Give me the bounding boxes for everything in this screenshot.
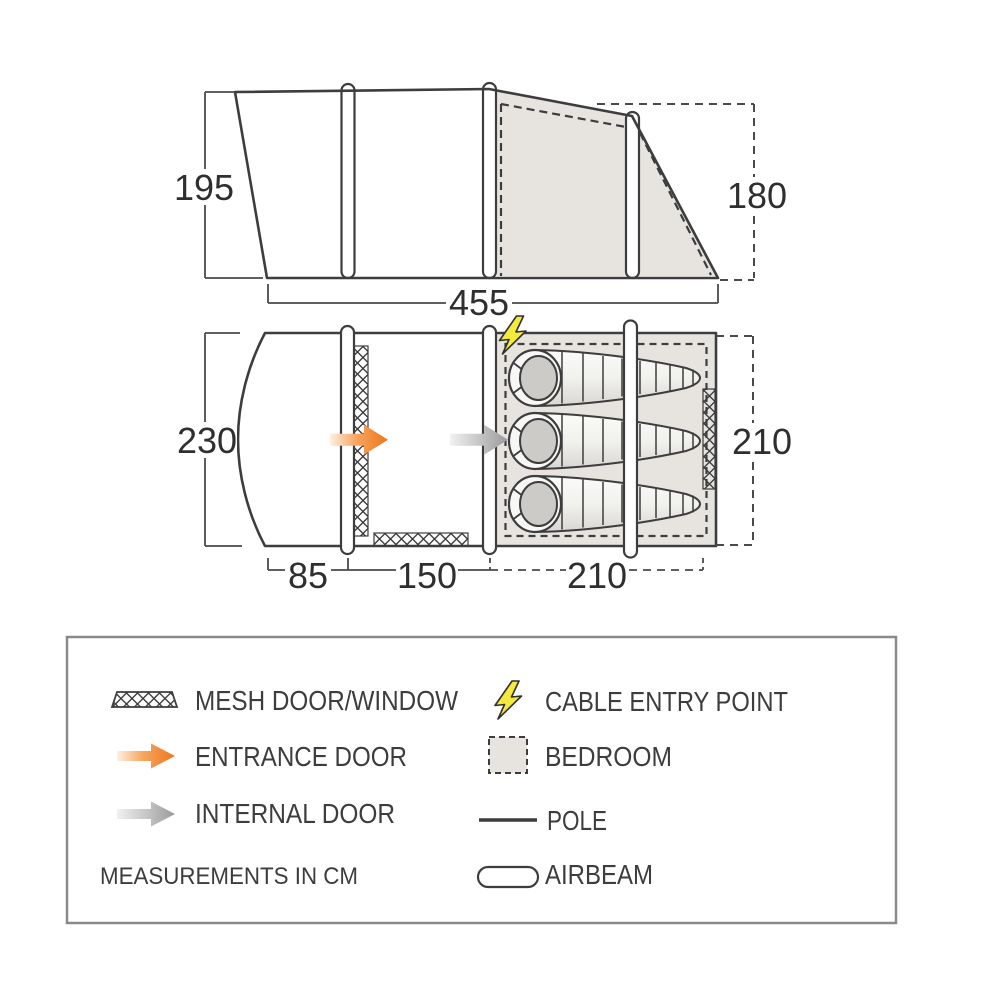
elevation-height-right-label: 180 (727, 175, 787, 216)
mesh-pattern-icon (112, 692, 177, 707)
legend-label-internal: INTERNAL DOOR (195, 798, 395, 829)
tent-dimensions-diagram: 195 180 455 (0, 0, 1001, 1001)
legend-measurements-note: MEASUREMENTS IN CM (100, 863, 358, 890)
airbeam-pole-icon (483, 83, 496, 278)
airbeam-pole-icon (624, 321, 637, 558)
floorplan-width-left-label: 230 (177, 420, 237, 461)
floorplan-living-length-label: 150 (397, 555, 457, 596)
airbeam-pole-icon (626, 112, 639, 278)
airbeam-capsule-icon (478, 867, 538, 887)
floorplan-view: 230 210 85 150 210 (177, 316, 792, 596)
legend-label-entrance: ENTRANCE DOOR (195, 741, 407, 772)
floorplan-length-dimensions (268, 558, 703, 570)
floorplan-porch-length-label: 85 (288, 555, 328, 596)
elevation-width-label: 455 (449, 282, 509, 323)
floorplan-width-right-label: 210 (732, 421, 792, 462)
floorplan-bedroom-length-label: 210 (567, 555, 627, 596)
bedroom-swatch-icon (489, 737, 527, 773)
legend: MESH DOOR/WINDOW ENTRANCE DOOR INTERNAL … (67, 637, 896, 923)
mesh-door-window-icon (703, 389, 715, 489)
legend-label-mesh: MESH DOOR/WINDOW (195, 685, 458, 716)
legend-label-bedroom: BEDROOM (545, 741, 672, 772)
mesh-door-window-icon (374, 533, 468, 546)
elevation-view: 195 180 455 (174, 83, 787, 323)
elevation-bedroom-shade (497, 91, 717, 276)
legend-label-pole: POLE (547, 805, 607, 836)
legend-label-airbeam: AIRBEAM (545, 859, 653, 890)
elevation-height-left-label: 195 (174, 167, 234, 208)
airbeam-pole-icon (342, 84, 355, 278)
legend-label-cable: CABLE ENTRY POINT (545, 686, 788, 717)
